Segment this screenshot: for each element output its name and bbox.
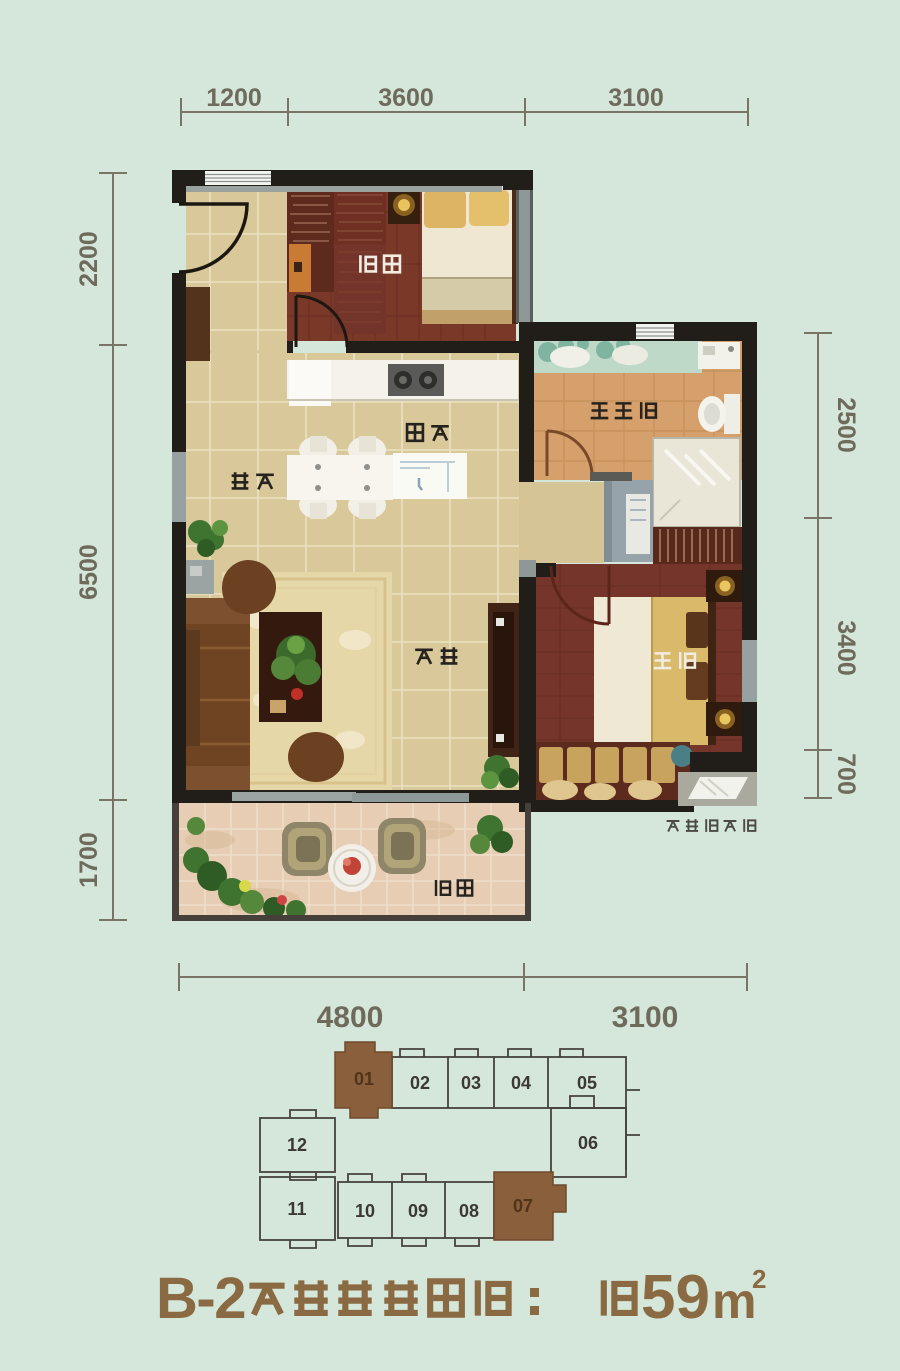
svg-text:10: 10 [355,1201,375,1221]
svg-text:07: 07 [513,1196,533,1216]
svg-text:1700: 1700 [75,832,103,888]
svg-text:12: 12 [287,1135,307,1155]
svg-text:4800: 4800 [317,1001,384,1034]
svg-text:3600: 3600 [378,84,434,112]
svg-text:02: 02 [410,1073,430,1093]
svg-text:08: 08 [459,1201,479,1221]
svg-text:6500: 6500 [75,544,103,600]
svg-text:3400: 3400 [832,620,860,676]
svg-text:3100: 3100 [608,84,664,112]
svg-text:09: 09 [408,1201,428,1221]
svg-text:2500: 2500 [832,397,860,453]
svg-text:01: 01 [354,1069,374,1089]
svg-text:06: 06 [578,1133,598,1153]
svg-text:59: 59 [641,1263,710,1332]
svg-text:2200: 2200 [75,231,103,287]
svg-text:04: 04 [511,1073,531,1093]
svg-text:700: 700 [832,753,860,795]
svg-text:B-2: B-2 [156,1266,245,1331]
svg-text:03: 03 [461,1073,481,1093]
svg-text:05: 05 [577,1073,597,1093]
svg-text:1200: 1200 [206,84,262,112]
svg-text:m: m [712,1273,756,1329]
svg-text:3100: 3100 [612,1001,679,1034]
svg-text:2: 2 [752,1264,766,1294]
svg-text:11: 11 [287,1199,306,1219]
